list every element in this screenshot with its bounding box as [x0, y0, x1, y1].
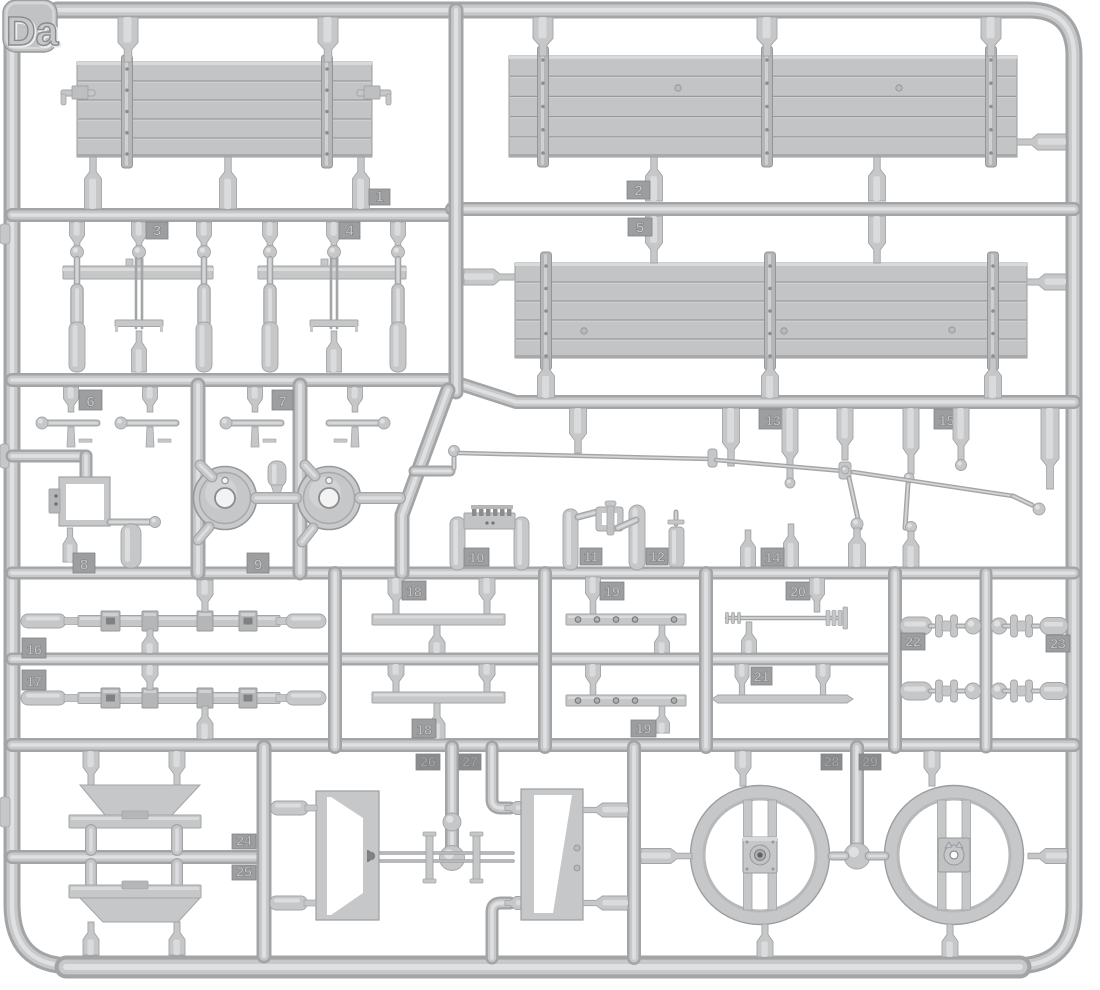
- svg-text:Da: Da: [6, 8, 60, 54]
- svg-text:25: 25: [236, 864, 252, 880]
- svg-text:15: 15: [939, 413, 955, 429]
- svg-text:18: 18: [406, 584, 422, 600]
- svg-text:19: 19: [636, 721, 652, 737]
- svg-text:24: 24: [236, 833, 252, 849]
- svg-text:4: 4: [345, 223, 354, 240]
- svg-text:8: 8: [80, 557, 88, 574]
- svg-text:20: 20: [790, 584, 806, 600]
- svg-text:14: 14: [765, 550, 781, 566]
- svg-text:3: 3: [153, 223, 161, 240]
- svg-text:6: 6: [86, 394, 94, 411]
- svg-text:17: 17: [26, 674, 42, 690]
- svg-text:12: 12: [649, 549, 665, 565]
- svg-text:7: 7: [278, 394, 286, 411]
- svg-text:29: 29: [862, 754, 878, 770]
- svg-text:21: 21: [754, 669, 770, 685]
- svg-text:22: 22: [905, 634, 921, 650]
- svg-text:28: 28: [824, 754, 840, 770]
- svg-text:2: 2: [634, 183, 642, 200]
- svg-text:9: 9: [254, 557, 262, 574]
- svg-text:19: 19: [604, 584, 620, 600]
- svg-text:1: 1: [375, 189, 383, 206]
- svg-text:26: 26: [420, 754, 436, 770]
- svg-text:16: 16: [26, 642, 42, 658]
- svg-text:13: 13: [765, 413, 781, 429]
- svg-text:10: 10: [469, 550, 485, 566]
- svg-text:27: 27: [462, 754, 478, 770]
- svg-text:11: 11: [584, 549, 599, 565]
- svg-text:18: 18: [416, 722, 432, 738]
- svg-text:23: 23: [1050, 636, 1066, 652]
- svg-text:5: 5: [636, 220, 644, 237]
